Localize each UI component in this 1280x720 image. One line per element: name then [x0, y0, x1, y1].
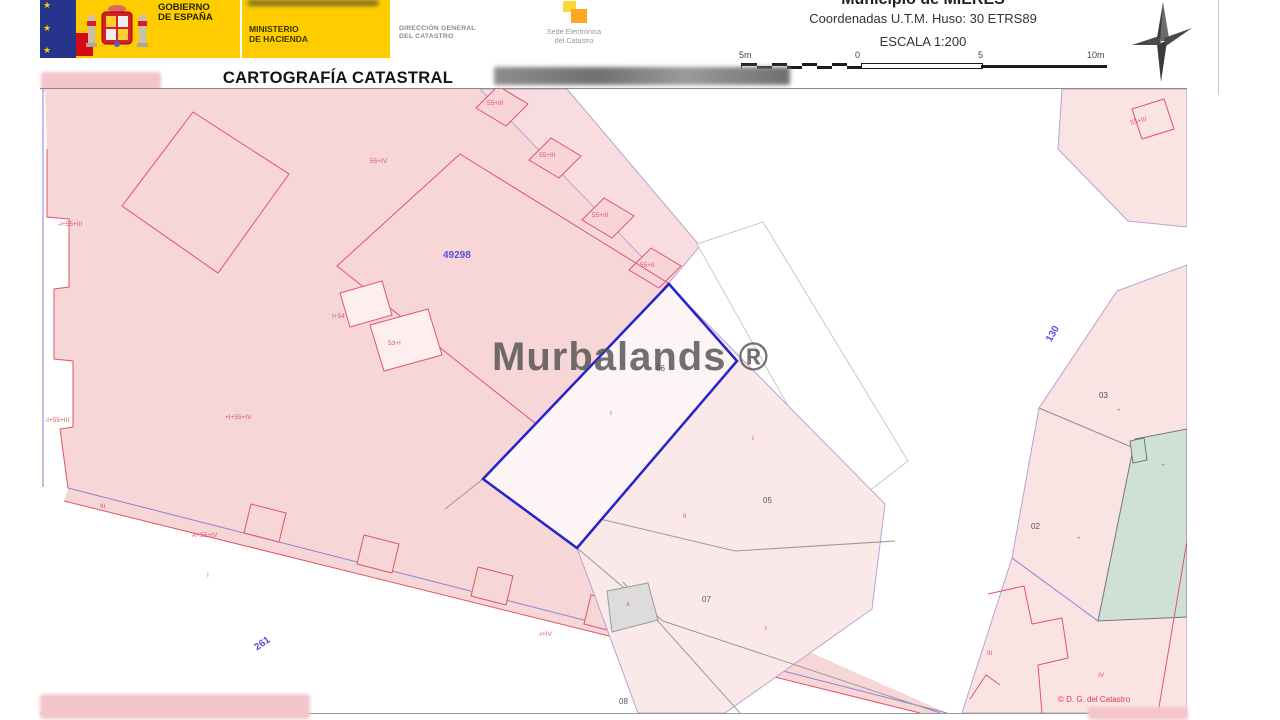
page-title: CARTOGRAFÍA CATASTRAL	[220, 69, 456, 88]
parcel-label: II	[683, 514, 687, 521]
parcel-label: 55+III	[1130, 117, 1148, 128]
gobierno-label: GOBIERNODE ESPAÑA	[158, 3, 213, 24]
parcel-label: 49298	[443, 251, 471, 261]
redacted-reference-bar	[494, 67, 790, 85]
scalebar-tick: 5m	[739, 50, 752, 60]
parcel-label: +	[1117, 408, 1121, 415]
parcel-label: I	[752, 436, 754, 443]
watermark: Murbalands ®	[492, 335, 769, 380]
parcel-labels-layer: 55+IV-I+55+III55+III55+III55+III55+III+5…	[40, 89, 1187, 713]
parcel-label: 55+III	[539, 153, 555, 160]
parcel-label: 55+II	[640, 263, 655, 270]
parcel-label: 53+I	[388, 341, 401, 348]
eu-flag-icon: ★ ★ ★	[40, 0, 76, 58]
parcel-label: +	[1077, 536, 1081, 543]
parcel-label: 05	[763, 497, 772, 505]
parcel-label: 08	[619, 698, 628, 706]
parcel-label: 55+III	[487, 101, 503, 108]
cadastral-map-canvas: 55+IV-I+55+III55+III55+III55+III55+III+5…	[40, 88, 1187, 714]
scalebar-tick: 10m	[1087, 50, 1105, 60]
parcel-label: 02	[1031, 523, 1040, 531]
scalebar-tick: 5	[978, 50, 983, 60]
ministerio-label: MINISTERIODE HACIENDA	[249, 25, 308, 45]
sede-icon	[571, 9, 587, 23]
redacted-reference-bar	[1088, 707, 1188, 720]
parcel-label: I	[765, 626, 767, 633]
parcel-label: 130	[1045, 325, 1062, 344]
parcel-label: 07	[702, 596, 711, 604]
parcel-label: III	[987, 651, 992, 658]
compass-icon	[1130, 0, 1194, 84]
parcel-label: -I+IV	[538, 632, 552, 639]
scale-label: ESCALA 1:200	[788, 34, 1058, 49]
parcel-label: I	[610, 411, 612, 418]
parcel-label: 55+IV	[370, 159, 387, 166]
utm-coordinates-label: Coordenadas U.T.M. Huso: 30 ETRS89	[788, 11, 1058, 26]
parcel-label: A+55+IV	[192, 533, 217, 540]
scalebar-tick: 0	[855, 50, 860, 60]
page: ★ ★ ★ GOBIERNODE ESPAÑA MINISTERIODE HAC…	[0, 0, 1280, 720]
parcel-label: 03	[1099, 392, 1108, 400]
logo-divider	[240, 0, 242, 58]
parcel-label: 55+III	[592, 213, 608, 220]
parcel-label: I	[207, 573, 209, 580]
star-icon: ★	[43, 46, 51, 55]
parcel-label: -I+55+III	[45, 418, 69, 425]
redacted-reference-bar	[40, 694, 310, 719]
parcel-label: 261	[253, 635, 272, 653]
parcel-label: +	[1161, 463, 1165, 470]
parcel-label: I+54	[332, 314, 345, 321]
scalebar-segment	[981, 65, 1107, 68]
parcel-label: IV	[1098, 673, 1104, 680]
scalebar-segment	[861, 63, 983, 69]
star-icon: ★	[43, 1, 51, 10]
star-icon: ★	[43, 24, 51, 33]
parcel-label: III	[100, 504, 105, 511]
parcel-label: +I+55+IV	[225, 415, 252, 422]
copyright-label: © D. G. del Catastro	[1058, 695, 1130, 704]
scale-bar: 5m 0 5 10m	[735, 50, 1115, 74]
page-edge-line	[1218, 0, 1219, 95]
redacted-text-bar	[248, 0, 378, 6]
parcel-label: A	[626, 603, 630, 609]
municipio-title: Municipio de MIERES	[788, 0, 1058, 9]
coat-of-arms-icon	[86, 3, 148, 55]
parcel-label: -I+55+III	[58, 222, 82, 229]
direccion-general-label: DIRECCIÓN GENERALDEL CATASTRO	[399, 25, 476, 42]
sede-electronica-label: Sede Electrónicadel Catastro	[532, 27, 616, 45]
